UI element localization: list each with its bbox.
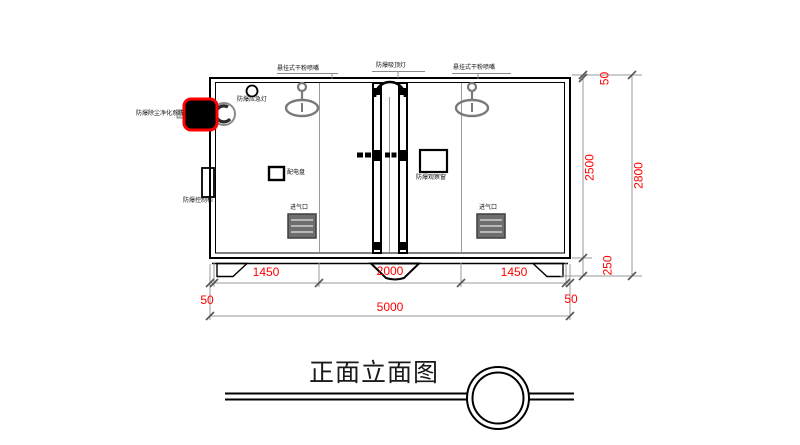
dim-roof-thickness: 50: [599, 66, 612, 92]
dim-wall-left: 50: [194, 294, 220, 307]
label-nozzle-right: 悬挂式干粉喷嘴: [453, 65, 495, 72]
dimension-lines: [206, 71, 642, 320]
power-panel-icon: [269, 167, 284, 180]
air-inlet-right-vent: [477, 214, 505, 238]
emergency-light-icon: [247, 86, 258, 97]
label-power-panel: 配电盘: [287, 170, 305, 177]
air-inlet-left-vent: [288, 214, 316, 238]
label-control-cabinet: 防爆控制柜: [183, 198, 213, 205]
dim-inner-height: 2500: [584, 152, 597, 184]
dim-base-height: 250: [602, 253, 615, 279]
support-leg-left: [217, 264, 247, 277]
dim-bay-left: 1450: [248, 266, 284, 279]
drawing-title: 正面立面图: [306, 353, 442, 389]
purifier-highlight-box: [184, 99, 217, 130]
center-pipes: [357, 82, 419, 280]
circle-symbol-outer: [467, 367, 529, 429]
dust-purifier-unit: [177, 99, 235, 130]
dim-bay-right: 1450: [496, 266, 532, 279]
label-ceiling-light: 防爆吸顶灯: [376, 63, 406, 70]
observation-window-icon: [420, 150, 447, 172]
partition-lines: [320, 83, 462, 252]
circle-symbol-inner: [473, 373, 524, 424]
dim-total-width: 5000: [368, 301, 412, 314]
label-air-inlet-right: 进气口: [479, 205, 497, 212]
label-observation-window: 防爆观察窗: [416, 175, 446, 182]
dim-wall-right: 50: [558, 293, 584, 306]
label-emergency-light: 防爆应急灯: [237, 97, 267, 104]
support-leg-right: [533, 264, 563, 277]
dim-bay-center: 2000: [372, 265, 408, 278]
dim-total-height: 2800: [633, 160, 646, 192]
elevation-drawing-canvas: 悬挂式干粉喷嘴 防爆吸顶灯 悬挂式干粉喷嘴 防爆应急灯 防爆除尘净化系统 防爆控…: [0, 0, 800, 445]
label-air-inlet-left: 进气口: [290, 205, 308, 212]
powder-nozzle-left-icon: [286, 83, 318, 116]
powder-nozzle-right-icon: [456, 83, 488, 116]
label-dust-purifier: 防爆除尘净化系统: [136, 111, 184, 118]
control-cabinet-icon: [202, 168, 214, 197]
label-nozzle-left: 悬挂式干粉喷嘴: [277, 66, 319, 73]
